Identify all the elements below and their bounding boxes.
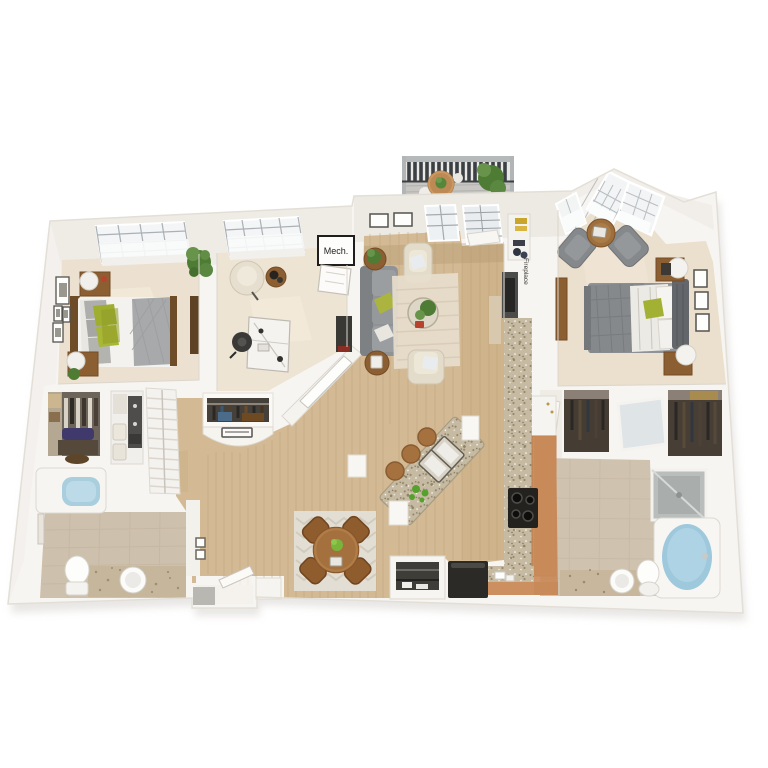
svg-text:Mech.: Mech. <box>324 246 349 256</box>
svg-text:Fireplace: Fireplace <box>522 258 529 285</box>
